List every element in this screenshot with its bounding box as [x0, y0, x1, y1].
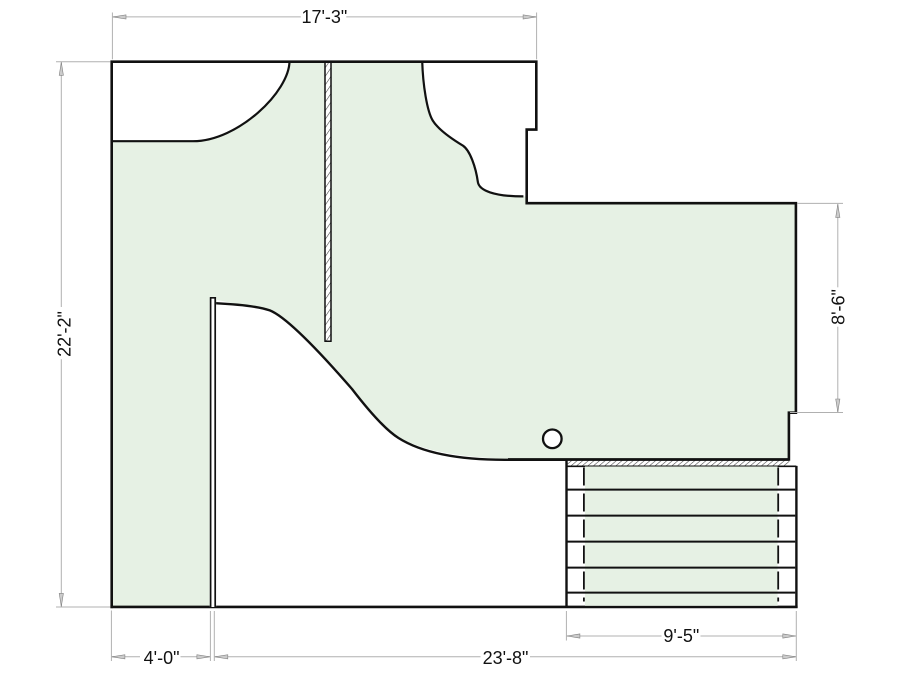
svg-text:23'-8": 23'-8" — [483, 648, 529, 668]
svg-text:8'-6": 8'-6" — [828, 289, 848, 325]
svg-text:4'-0": 4'-0" — [144, 648, 180, 668]
svg-text:17'-3": 17'-3" — [301, 7, 347, 27]
svg-text:9'-5": 9'-5" — [663, 626, 699, 646]
svg-text:22'-2": 22'-2" — [54, 311, 74, 357]
